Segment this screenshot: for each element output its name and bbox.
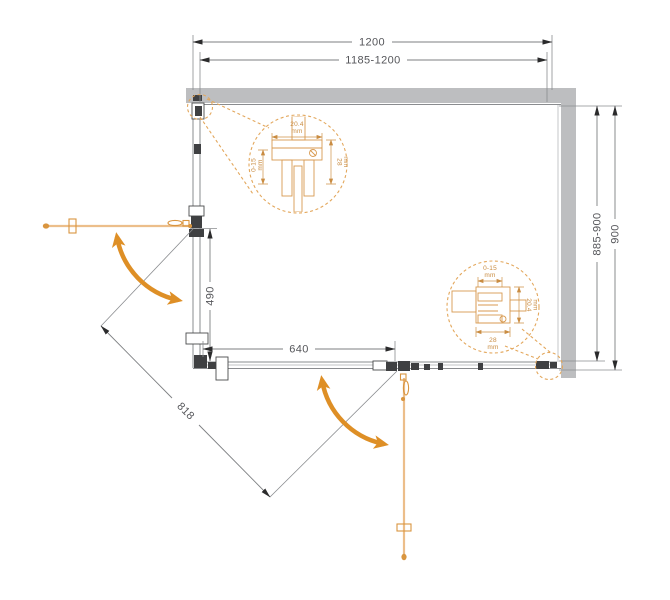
dim-line-818 <box>199 425 270 497</box>
threaded-rod-section <box>510 300 526 311</box>
bottom-hinge-pivot <box>398 361 410 371</box>
detail-left-width-unit: mm <box>291 128 302 135</box>
bottom-hinge-cap <box>411 363 419 370</box>
doors <box>43 219 411 560</box>
detail-left-depth-unit: mm <box>342 156 349 167</box>
wall-profile-core <box>195 106 202 116</box>
detail-right-width-value: 20.4 <box>525 298 532 312</box>
callout-leader-line <box>505 346 538 359</box>
bottom-rail-fitting <box>424 364 430 370</box>
clamp-jaw-top <box>478 293 502 301</box>
left-glass-clamp <box>186 333 208 344</box>
hardware <box>189 95 557 371</box>
detail-right-drawing <box>452 277 526 337</box>
detail-left-depth-value: 28 <box>336 158 343 166</box>
left-hinge-plate <box>189 206 204 216</box>
detail-callout-left: 20.4 mm 0-15 mm 28 mm <box>188 95 350 214</box>
extension-line-diagonal <box>101 229 193 326</box>
dim-text-side-inner: 885-900 <box>592 212 604 255</box>
bottom-rail-fitting <box>478 363 483 370</box>
right-wall <box>561 88 576 378</box>
bottom-door-pivot <box>401 397 405 401</box>
enclosure-frame <box>186 103 561 380</box>
bottom-left-corner-fitting <box>194 355 207 368</box>
bottom-rail-fitting <box>438 363 443 370</box>
detail-right-adjust-value: 0-15 <box>483 265 497 272</box>
glass-section <box>294 166 302 212</box>
drawing-canvas: 1200 1185-1200 885-900 900 490 640 818 <box>0 0 670 600</box>
profile-screw <box>500 316 506 322</box>
top-wall <box>186 88 576 103</box>
wall-section-hatch <box>452 291 476 312</box>
bottom-glass-clamp <box>216 357 228 380</box>
bottom-door-swing-arrow <box>322 380 384 444</box>
clamp-jaw-bottom <box>478 315 502 323</box>
detail-left-width-value: 20.4 <box>290 121 304 128</box>
dim-text-top-outer: 1200 <box>359 37 385 49</box>
left-panel-bracket <box>194 144 201 154</box>
bottom-hinge-plate <box>373 361 387 370</box>
bottom-door-edge-cap <box>401 554 406 560</box>
shower-enclosure-plan: 1200 1185-1200 885-900 900 490 640 818 <box>0 0 670 600</box>
left-door-hinge-arm <box>168 220 182 225</box>
left-door-pivot <box>188 224 192 228</box>
bottom-right-corner-cap <box>550 362 557 368</box>
left-hinge-body <box>191 216 202 228</box>
detail-right-depth-unit: mm <box>487 344 498 351</box>
clamp-jaw-right <box>304 160 314 196</box>
walls <box>186 88 576 378</box>
profile-screw-slot <box>310 150 316 156</box>
left-door-edge-cap <box>43 223 49 228</box>
callout-leader-line <box>200 117 253 194</box>
clamp-jaw-left <box>282 160 292 196</box>
bottom-right-corner-fitting <box>536 361 549 369</box>
dim-text-diagonal: 818 <box>174 400 196 422</box>
dim-text-bottom-door: 640 <box>289 344 309 356</box>
bottom-left-corner-cap <box>208 362 216 369</box>
dim-text-top-inner: 1185-1200 <box>345 55 400 67</box>
extension-line-diagonal <box>270 371 397 497</box>
detail-right-width-unit: mm <box>532 299 539 310</box>
left-door-swing-arrow <box>117 237 178 300</box>
dim-text-side-outer: 900 <box>610 224 622 244</box>
detail-right-depth-value: 28 <box>489 337 497 344</box>
bottom-hinge-body <box>386 362 397 371</box>
dim-text-left-door: 490 <box>205 286 217 306</box>
detail-right-adjust-unit: mm <box>484 272 495 279</box>
left-hinge-base <box>189 229 204 237</box>
callout-leader-line <box>207 99 269 128</box>
dim-line-818 <box>101 326 172 398</box>
callout-leader-line <box>522 329 551 353</box>
detail-left-adjust-unit: mm <box>257 159 264 170</box>
